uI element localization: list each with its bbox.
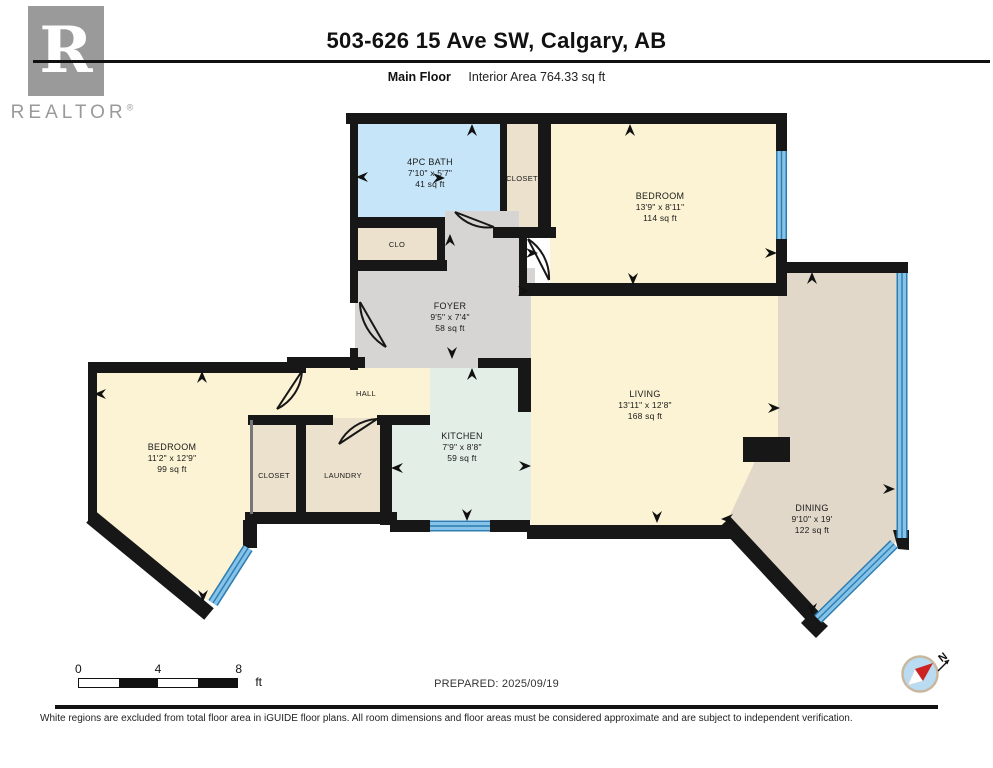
room-label-kitchen-dims: 7'9" x 8'8": [442, 442, 481, 452]
room-label-dining-name: DINING: [795, 503, 828, 513]
room-label-closet-second: CLOSET: [258, 471, 290, 480]
room-label-dining-dims: 9'10" x 19': [791, 514, 832, 524]
room-label-bedroom-main-name: BEDROOM: [636, 191, 685, 201]
fireplace: [743, 437, 790, 462]
room-label-foyer-area: 58 sq ft: [435, 323, 465, 333]
room-label-bedroom-main-dims: 13'9" x 8'11": [636, 202, 685, 212]
realtor-logo: R REALTOR®: [28, 6, 104, 96]
realtor-logo-box: R: [28, 6, 104, 96]
room-label-bedroom-second-area: 99 sq ft: [157, 464, 187, 474]
compass-rose: N: [893, 648, 967, 700]
room-label-hall: HALL: [356, 389, 376, 398]
room-label-living-dims: 13'11" x 12'8": [618, 400, 672, 410]
room-label-living-name: LIVING: [629, 389, 660, 399]
room-label-bath-area: 41 sq ft: [415, 179, 445, 189]
room-label-foyer-name: FOYER: [434, 301, 467, 311]
registered-mark: ®: [127, 103, 134, 113]
disclaimer-text: White regions are excluded from total fl…: [40, 713, 960, 724]
room-label-kitchen-area: 59 sq ft: [447, 453, 477, 463]
room-label-bedroom-second-name: BEDROOM: [148, 442, 197, 452]
realtor-logo-text: REALTOR®: [4, 102, 140, 124]
floor-plan-page: R REALTOR® 503-626 15 Ave SW, Calgary, A…: [0, 0, 993, 768]
realtor-logo-letter: R: [39, 19, 92, 83]
room-label-foyer-dims: 9'5" x 7'4": [430, 312, 469, 322]
scale-label-4: 4: [155, 662, 162, 676]
room-label-laundry: LAUNDRY: [324, 471, 362, 480]
title-divider: [33, 60, 990, 63]
scale-bar-segments: [78, 678, 238, 688]
scale-unit: ft: [255, 675, 262, 689]
room-label-dining-area: 122 sq ft: [795, 525, 830, 535]
scale-bar: 0 4 8 ft: [78, 662, 238, 688]
footer-divider: [55, 705, 938, 709]
room-laundry-floor: [306, 418, 380, 514]
room-label-bedroom-second-dims: 11'2" x 12'9": [148, 453, 197, 463]
room-label-living-area: 168 sq ft: [628, 411, 663, 421]
scale-label-8: 8: [235, 662, 242, 676]
room-label-clo: CLO: [389, 240, 405, 249]
scale-label-0: 0: [75, 662, 82, 676]
room-label-bedroom-main-area: 114 sq ft: [643, 213, 677, 223]
room-label-kitchen-name: KITCHEN: [441, 431, 483, 441]
floor-plan-svg: 4PC BATH 7'10" x 5'7" 41 sq ft CLOSET BE…: [0, 0, 993, 768]
room-label-bath-dims: 7'10" x 5'7": [408, 168, 452, 178]
room-label-closet-top: CLOSET: [506, 174, 538, 183]
room-label-bath-name: 4PC BATH: [407, 157, 453, 167]
room-closet-second-floor: [252, 418, 296, 514]
